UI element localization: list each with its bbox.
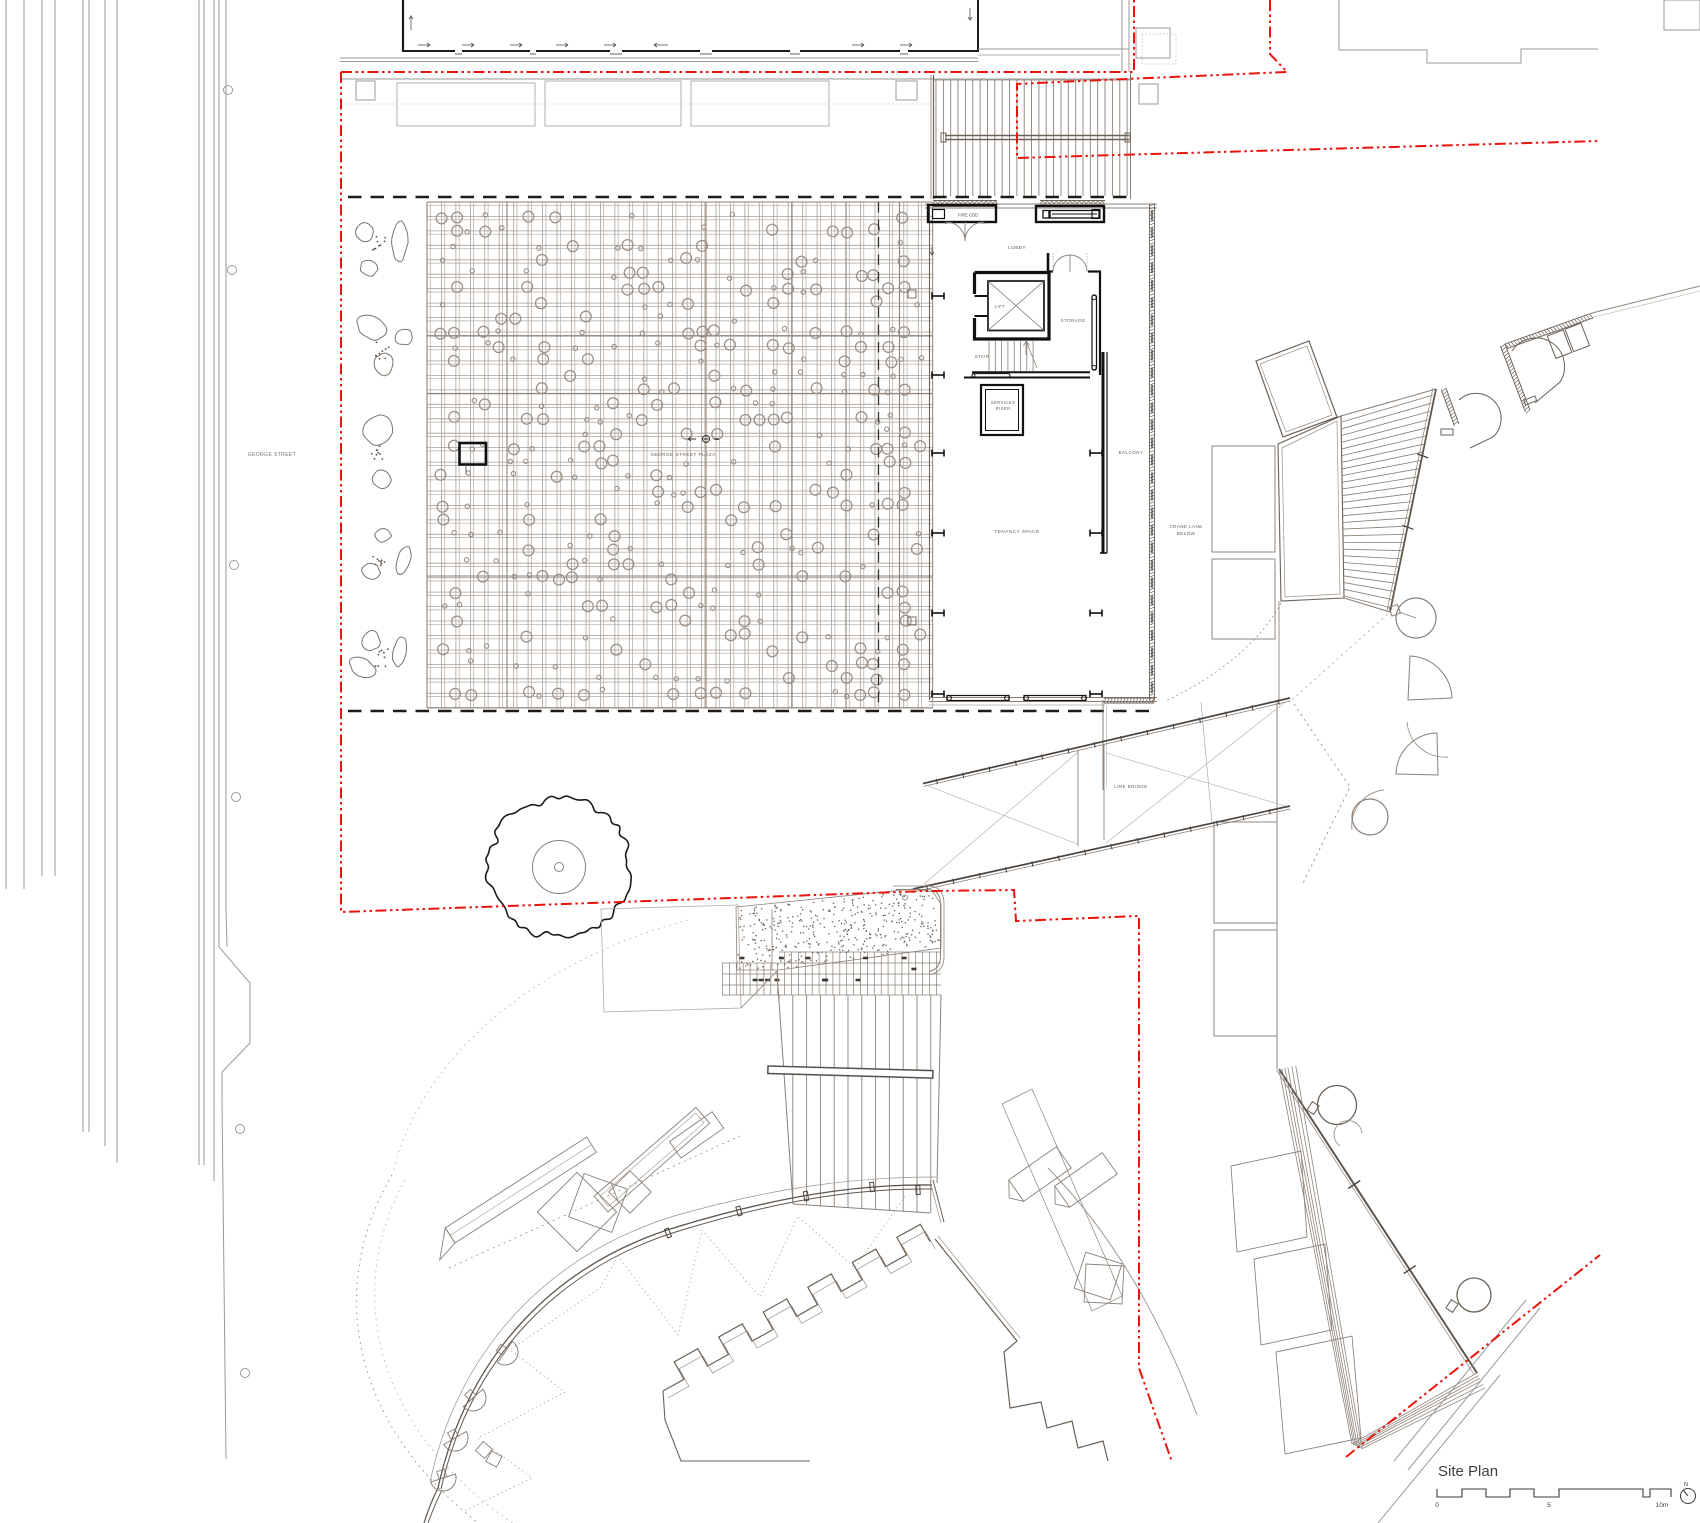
svg-text:BALCONY: BALCONY bbox=[1119, 450, 1144, 455]
svg-text:N: N bbox=[1684, 1482, 1688, 1488]
svg-text:BELOW: BELOW bbox=[1177, 531, 1196, 536]
svg-text:GEORGE STREET: GEORGE STREET bbox=[248, 452, 296, 458]
svg-text:STORAGE: STORAGE bbox=[1061, 318, 1086, 323]
svg-text:RISER: RISER bbox=[996, 406, 1011, 411]
svg-text:0: 0 bbox=[1435, 1502, 1439, 1509]
svg-text:GEORGE STREET PLAZA: GEORGE STREET PLAZA bbox=[650, 452, 716, 458]
svg-text:TENANCY SPACE: TENANCY SPACE bbox=[994, 529, 1039, 535]
svg-text:Site Plan: Site Plan bbox=[1438, 1463, 1498, 1480]
svg-text:5: 5 bbox=[1547, 1502, 1551, 1509]
svg-text:CRANE LANE: CRANE LANE bbox=[1169, 524, 1202, 529]
svg-text:LOBBY: LOBBY bbox=[1008, 245, 1026, 251]
svg-text:SERVICES: SERVICES bbox=[991, 400, 1015, 405]
svg-text:LIFT: LIFT bbox=[995, 304, 1006, 309]
svg-text:FIRE CBD: FIRE CBD bbox=[958, 213, 978, 218]
svg-text:10m: 10m bbox=[1656, 1502, 1669, 1509]
svg-text:LINK BRIDGE: LINK BRIDGE bbox=[1114, 784, 1148, 789]
svg-text:STAIR: STAIR bbox=[975, 354, 990, 359]
